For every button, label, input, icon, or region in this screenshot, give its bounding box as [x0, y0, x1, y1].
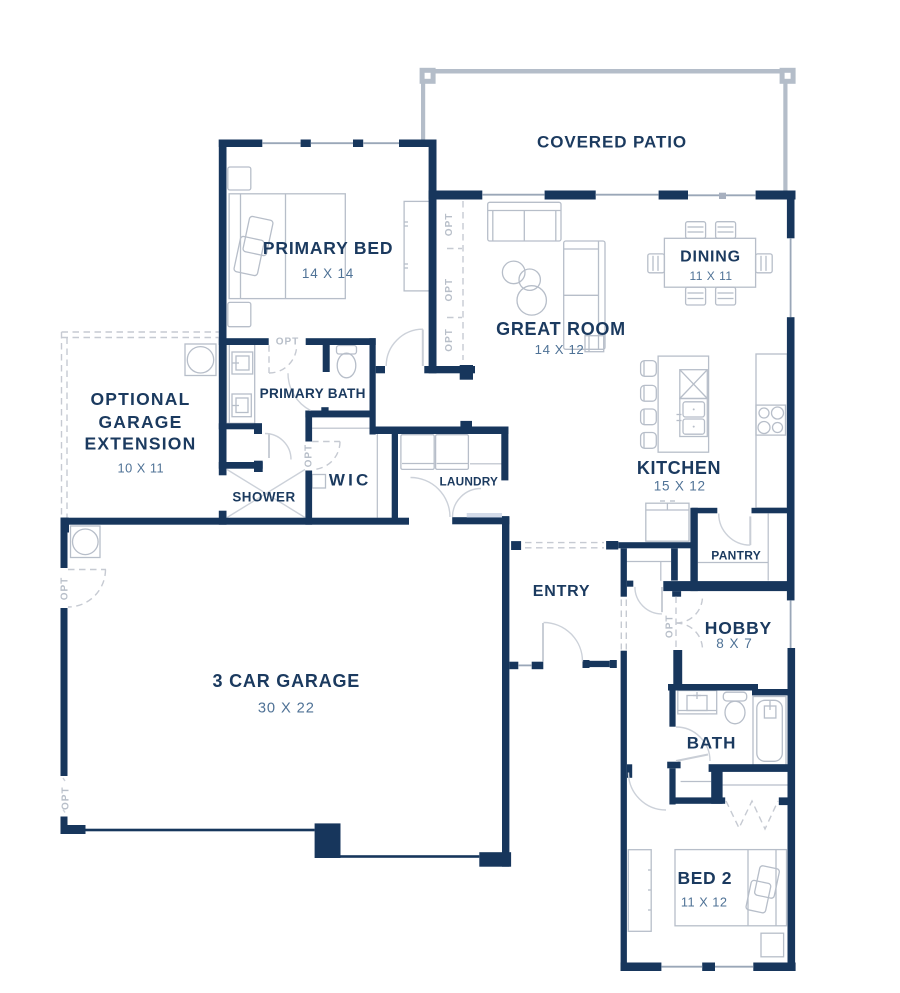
svg-text:3 CAR GARAGE: 3 CAR GARAGE	[212, 671, 360, 691]
svg-text:GREAT ROOM: GREAT ROOM	[496, 319, 626, 339]
svg-text:HOBBY: HOBBY	[705, 618, 772, 638]
svg-text:BED 2: BED 2	[678, 868, 733, 888]
svg-text:15 X 12: 15 X 12	[654, 478, 706, 493]
svg-text:LAUNDRY: LAUNDRY	[439, 474, 498, 488]
svg-text:PRIMARY BATH: PRIMARY BATH	[260, 386, 366, 401]
svg-text:BATH: BATH	[687, 734, 737, 753]
svg-text:OPT: OPT	[60, 577, 71, 601]
svg-text:10 X 11: 10 X 11	[117, 461, 164, 476]
svg-text:KITCHEN: KITCHEN	[637, 458, 721, 478]
svg-text:11 X 11: 11 X 11	[689, 269, 732, 283]
svg-text:OPT: OPT	[444, 213, 455, 237]
svg-text:8 X 7: 8 X 7	[716, 636, 753, 651]
svg-text:PRIMARY BED: PRIMARY BED	[263, 238, 393, 258]
svg-text:GARAGE: GARAGE	[98, 412, 182, 432]
svg-text:14 X 12: 14 X 12	[535, 342, 585, 357]
svg-text:COVERED PATIO: COVERED PATIO	[537, 133, 687, 152]
svg-text:DINING: DINING	[680, 249, 741, 266]
svg-text:OPT: OPT	[276, 337, 300, 348]
svg-text:11 X 12: 11 X 12	[681, 894, 728, 909]
svg-text:EXTENSION: EXTENSION	[85, 434, 197, 454]
svg-text:OPT: OPT	[444, 278, 455, 302]
svg-text:OPT: OPT	[444, 328, 455, 352]
svg-text:14 X 14: 14 X 14	[302, 266, 354, 281]
svg-text:OPTIONAL: OPTIONAL	[90, 389, 190, 409]
svg-text:ENTRY: ENTRY	[533, 583, 591, 600]
svg-text:OPT: OPT	[665, 615, 676, 639]
svg-text:OPT: OPT	[61, 786, 72, 810]
svg-text:WIC: WIC	[329, 470, 372, 489]
svg-text:30 X 22: 30 X 22	[258, 701, 315, 717]
svg-text:OPT: OPT	[304, 444, 315, 468]
svg-text:PANTRY: PANTRY	[711, 548, 761, 562]
svg-text:SHOWER: SHOWER	[232, 489, 295, 504]
